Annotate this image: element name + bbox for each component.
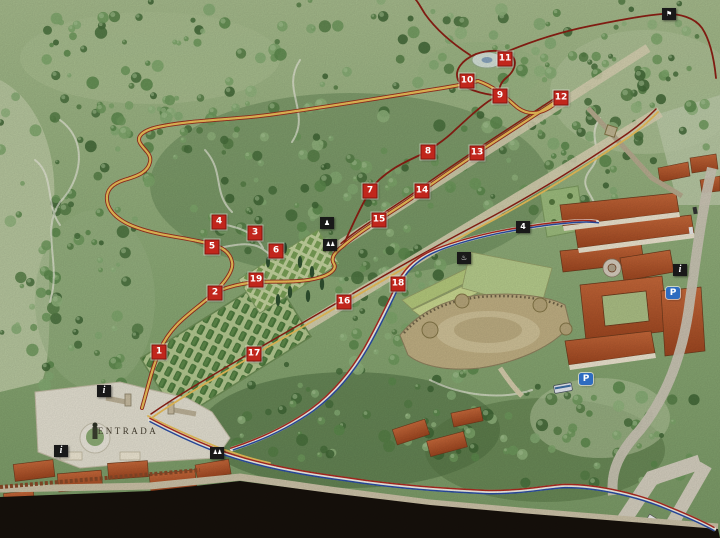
info-icon[interactable]: i bbox=[54, 445, 68, 457]
map-marker-12[interactable]: 12 bbox=[554, 91, 569, 106]
map-marker-1[interactable]: 1 bbox=[152, 345, 167, 360]
map-marker-8[interactable]: 8 bbox=[421, 145, 436, 160]
map-marker-4[interactable]: 4 bbox=[212, 215, 227, 230]
parking-icon[interactable]: P bbox=[666, 287, 680, 299]
wc-icon[interactable]: ♟♟ bbox=[323, 239, 337, 251]
park-map: ENTRADA 12345678910111213141516171819⚑♟♟… bbox=[0, 0, 720, 538]
map-marker-11[interactable]: 11 bbox=[498, 52, 513, 67]
map-marker-14[interactable]: 14 bbox=[415, 184, 430, 199]
viewpoint-icon[interactable]: ⚑ bbox=[662, 8, 676, 20]
map-marker-17[interactable]: 17 bbox=[247, 347, 262, 362]
map-overlay: ENTRADA 12345678910111213141516171819⚑♟♟… bbox=[0, 0, 720, 538]
map-marker-10[interactable]: 10 bbox=[460, 74, 475, 89]
statue-icon[interactable]: ♟ bbox=[320, 217, 334, 229]
wc-icon[interactable]: ♟♟ bbox=[210, 447, 224, 459]
entrance-label: ENTRADA bbox=[98, 426, 159, 436]
black-marker-4[interactable]: 4 bbox=[516, 221, 530, 233]
map-marker-5[interactable]: 5 bbox=[205, 240, 220, 255]
info-icon[interactable]: i bbox=[673, 264, 687, 276]
map-marker-9[interactable]: 9 bbox=[493, 89, 508, 104]
map-marker-6[interactable]: 6 bbox=[269, 244, 284, 259]
parking-icon[interactable]: P bbox=[579, 373, 593, 385]
info-icon[interactable]: i bbox=[97, 385, 111, 397]
map-marker-16[interactable]: 16 bbox=[337, 295, 352, 310]
map-marker-18[interactable]: 18 bbox=[391, 277, 406, 292]
map-marker-15[interactable]: 15 bbox=[372, 213, 387, 228]
map-marker-19[interactable]: 19 bbox=[249, 273, 264, 288]
map-marker-7[interactable]: 7 bbox=[363, 184, 378, 199]
map-marker-13[interactable]: 13 bbox=[470, 146, 485, 161]
map-marker-3[interactable]: 3 bbox=[248, 226, 263, 241]
fountain-icon[interactable]: ♨ bbox=[457, 252, 471, 264]
map-marker-2[interactable]: 2 bbox=[208, 286, 223, 301]
